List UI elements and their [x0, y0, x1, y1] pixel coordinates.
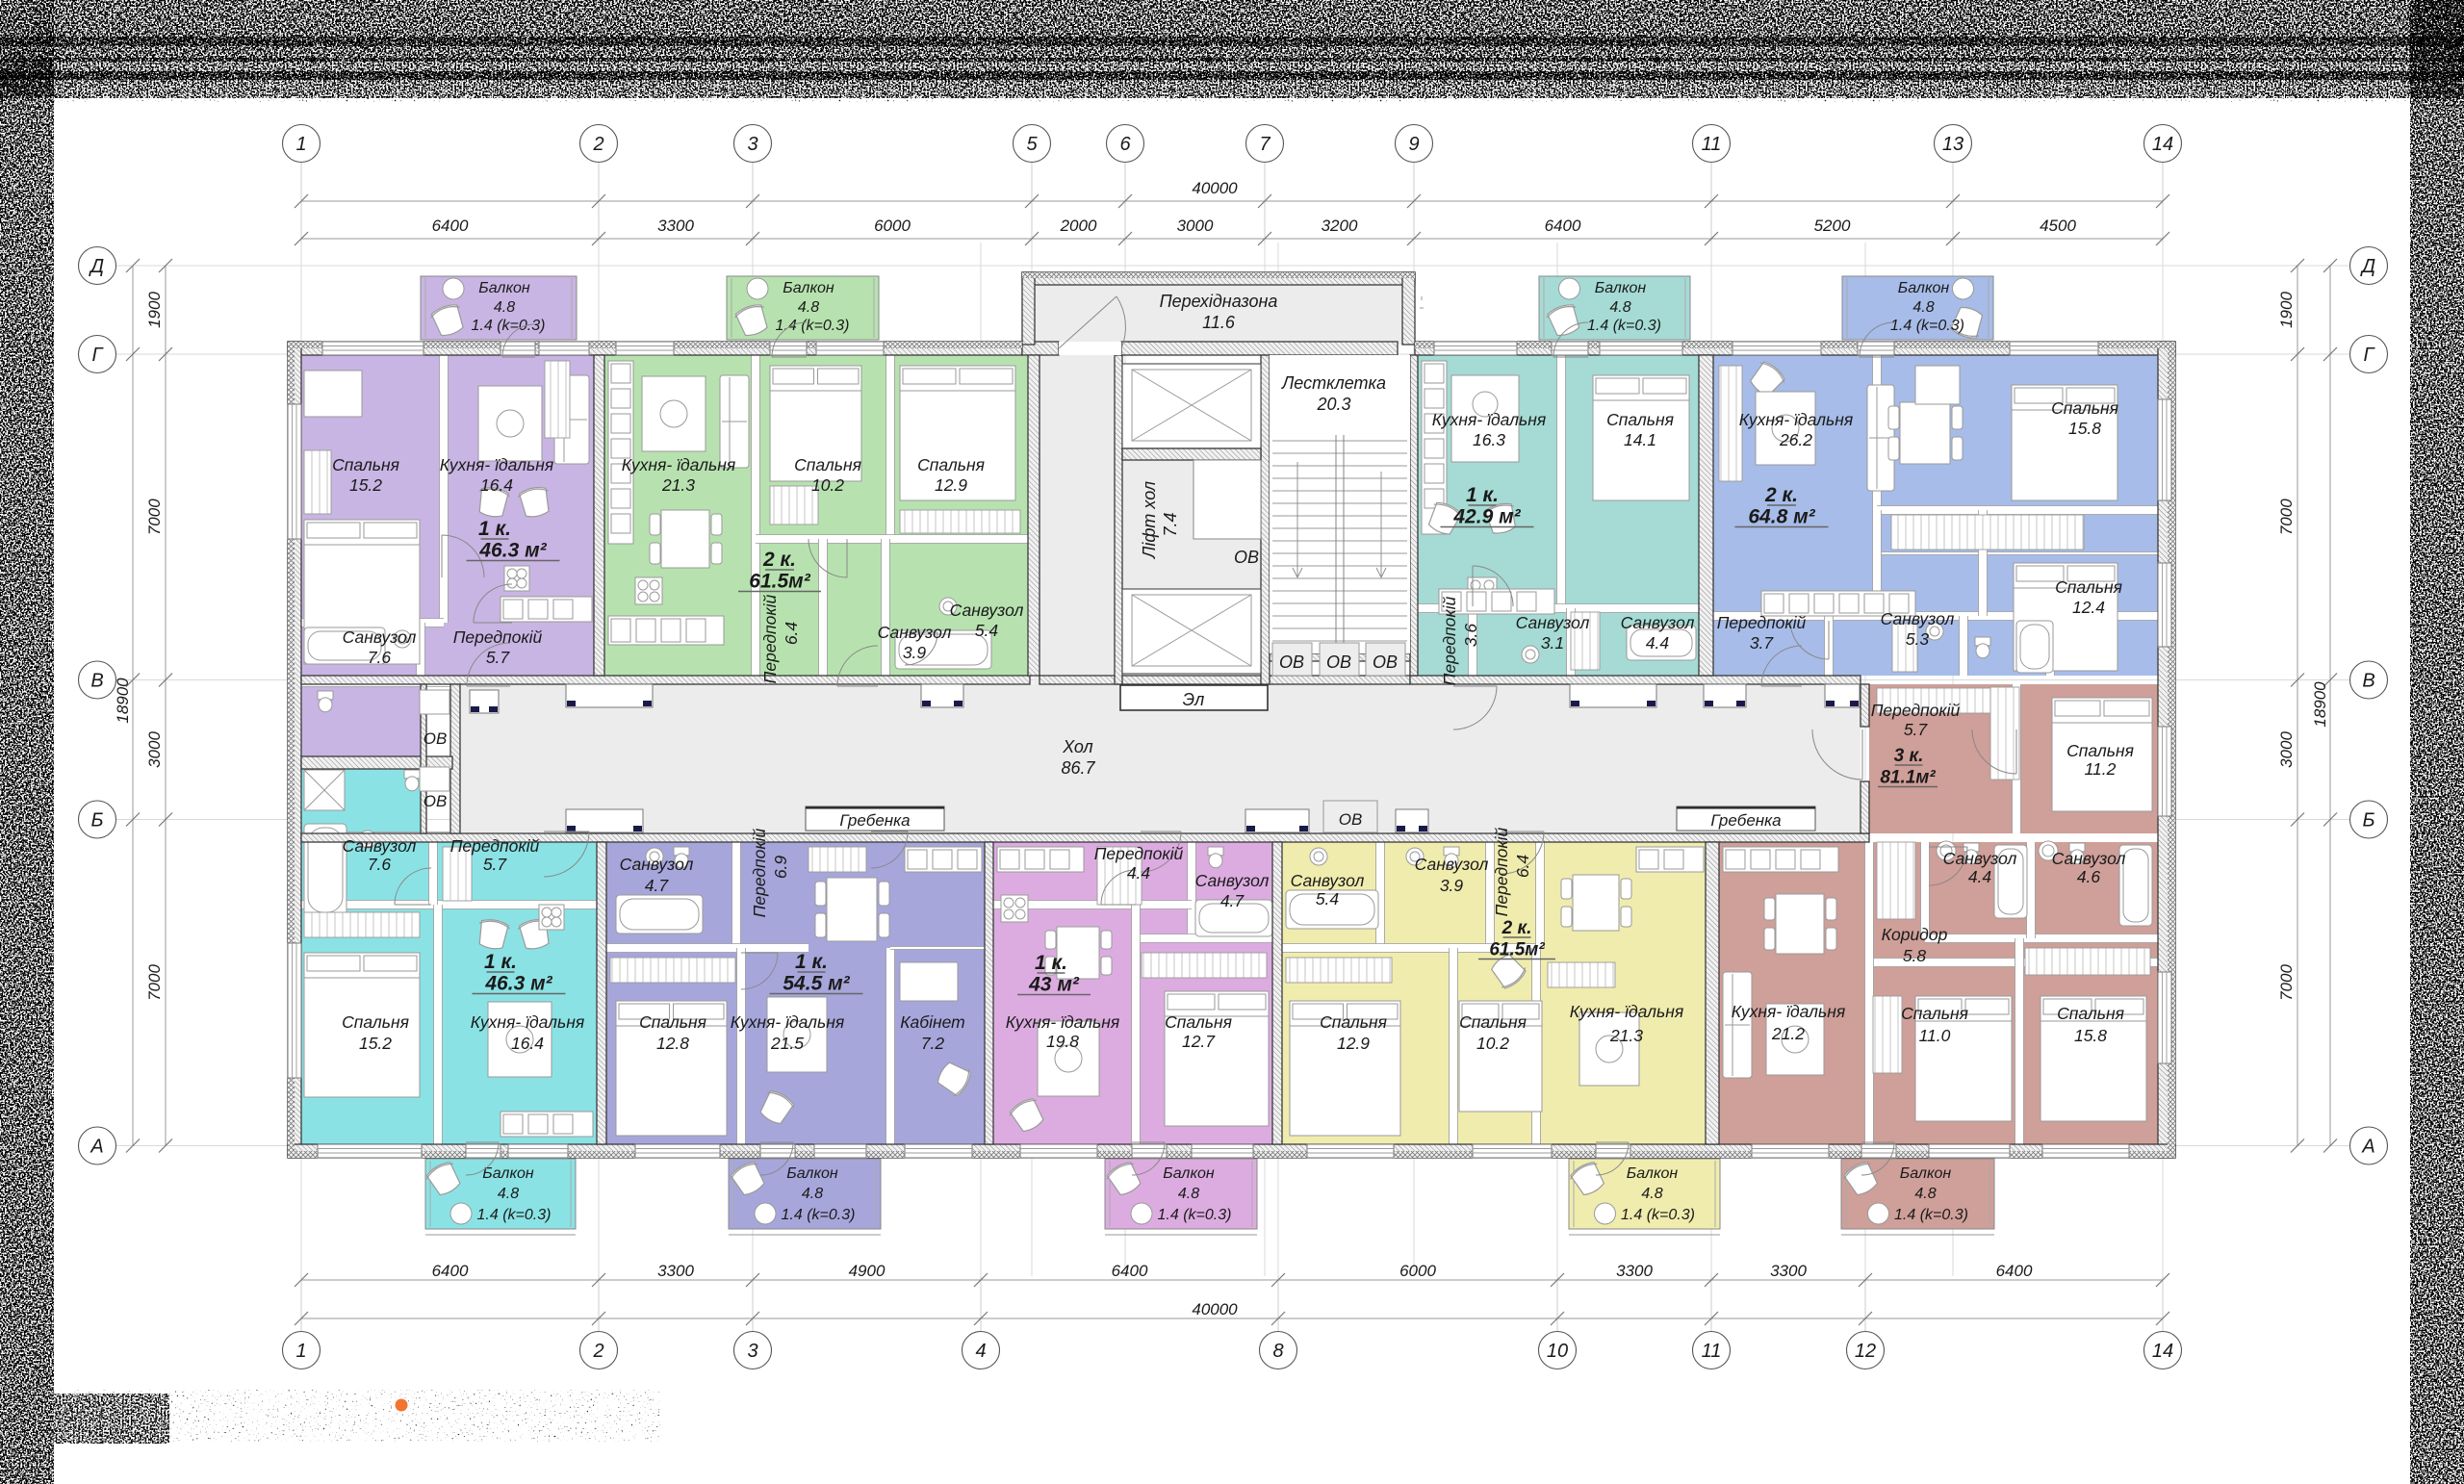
svg-text:5.7: 5.7	[483, 855, 508, 874]
svg-text:21.3: 21.3	[1609, 1026, 1643, 1045]
svg-text:7000: 7000	[145, 499, 164, 535]
svg-text:26.2: 26.2	[1779, 430, 1812, 449]
svg-text:А: А	[90, 1137, 103, 1158]
svg-text:Кухня- їдальня: Кухня- їдальня	[1739, 410, 1853, 429]
svg-text:Спальня: Спальня	[2055, 577, 2122, 597]
svg-text:Спальня: Спальня	[1606, 410, 1674, 429]
svg-text:1.4 (k=0.3): 1.4 (k=0.3)	[1587, 318, 1661, 334]
svg-text:3300: 3300	[657, 1262, 694, 1280]
svg-text:15.8: 15.8	[2068, 419, 2101, 438]
svg-text:Санвузол: Санвузол	[1415, 855, 1489, 874]
svg-text:16.4: 16.4	[511, 1034, 544, 1053]
svg-text:16.4: 16.4	[480, 475, 513, 495]
svg-text:1.4 (k=0.3): 1.4 (k=0.3)	[1158, 1207, 1232, 1223]
svg-text:12: 12	[1855, 1341, 1876, 1362]
svg-text:18900: 18900	[114, 678, 132, 724]
svg-text:Перехідназона: Перехідназона	[1160, 292, 1278, 311]
svg-text:4500: 4500	[2040, 217, 2076, 235]
svg-text:5.4: 5.4	[975, 621, 999, 640]
svg-text:Санвузол: Санвузол	[950, 601, 1024, 620]
svg-text:4.8: 4.8	[798, 299, 819, 316]
svg-text:6.4: 6.4	[782, 622, 801, 646]
svg-text:11: 11	[1702, 134, 1722, 155]
svg-text:Балкон: Балкон	[1163, 1165, 1215, 1182]
svg-text:12.9: 12.9	[935, 475, 967, 495]
svg-text:40000: 40000	[1192, 1300, 1238, 1318]
svg-text:Передпокій: Передпокій	[1094, 844, 1184, 863]
svg-text:4.7: 4.7	[1220, 891, 1245, 910]
svg-text:Кухня- їдальня: Кухня- їдальня	[471, 1012, 584, 1032]
svg-text:3.9: 3.9	[903, 643, 927, 662]
svg-text:3000: 3000	[2277, 731, 2296, 768]
svg-text:Ліфт хол: Ліфт хол	[1140, 481, 1159, 559]
svg-text:3.6: 3.6	[1461, 624, 1480, 648]
svg-text:18900: 18900	[2311, 681, 2329, 728]
svg-text:1.4 (k=0.3): 1.4 (k=0.3)	[472, 318, 546, 334]
svg-text:42.9 м²: 42.9 м²	[1452, 506, 1521, 528]
svg-text:1900: 1900	[145, 292, 164, 328]
svg-text:4.8: 4.8	[1641, 1186, 1662, 1202]
svg-text:12.7: 12.7	[1182, 1032, 1216, 1051]
svg-text:Лестклетка: Лестклетка	[1281, 373, 1386, 393]
svg-text:Передпокій: Передпокій	[1440, 596, 1459, 685]
svg-text:19.8: 19.8	[1046, 1032, 1079, 1051]
svg-text:3300: 3300	[1616, 1262, 1653, 1280]
svg-text:4.7: 4.7	[645, 876, 670, 895]
svg-text:А: А	[2361, 1137, 2374, 1158]
svg-text:81.1м²: 81.1м²	[1880, 768, 1936, 788]
svg-text:Гребенка: Гребенка	[839, 811, 910, 830]
svg-text:Санвузол: Санвузол	[620, 855, 694, 874]
svg-text:7000: 7000	[145, 964, 164, 1001]
svg-text:1 к.: 1 к.	[1035, 952, 1067, 974]
svg-text:12.9: 12.9	[1337, 1034, 1370, 1053]
svg-text:21.3: 21.3	[661, 475, 695, 495]
svg-text:Спальня: Спальня	[1459, 1012, 1527, 1032]
svg-text:20.3: 20.3	[1316, 395, 1350, 414]
svg-text:64.8 м²: 64.8 м²	[1748, 506, 1815, 528]
svg-text:5200: 5200	[1814, 217, 1851, 235]
svg-text:Санвузол: Санвузол	[1621, 613, 1695, 632]
svg-text:40000: 40000	[1192, 179, 1238, 197]
svg-text:6: 6	[1119, 134, 1131, 155]
svg-text:15.2: 15.2	[359, 1034, 392, 1053]
svg-text:ОВ: ОВ	[1326, 652, 1351, 672]
svg-text:ОВ: ОВ	[1279, 652, 1304, 672]
svg-text:Балкон: Балкон	[478, 280, 530, 296]
svg-text:Передпокій: Передпокій	[1717, 613, 1807, 632]
svg-text:3300: 3300	[1770, 1262, 1807, 1280]
svg-text:Эл: Эл	[1183, 690, 1205, 709]
svg-text:Передпокій: Передпокій	[453, 627, 543, 647]
svg-text:Санвузол: Санвузол	[1195, 871, 1270, 890]
svg-text:7000: 7000	[2277, 499, 2296, 535]
svg-text:3.1: 3.1	[1541, 633, 1564, 652]
svg-text:6000: 6000	[874, 217, 911, 235]
svg-text:10: 10	[1547, 1341, 1568, 1362]
svg-text:1 к.: 1 к.	[1466, 484, 1499, 506]
svg-text:8: 8	[1272, 1341, 1283, 1362]
svg-text:4.6: 4.6	[2077, 867, 2101, 886]
svg-text:ОВ: ОВ	[423, 729, 448, 748]
svg-text:3000: 3000	[1177, 217, 1214, 235]
svg-text:Спальня: Спальня	[1320, 1012, 1387, 1032]
svg-text:10.2: 10.2	[811, 475, 844, 495]
svg-text:14.1: 14.1	[1624, 430, 1656, 449]
svg-text:Передпокій: Передпокій	[1871, 701, 1961, 720]
svg-text:3000: 3000	[145, 731, 164, 768]
svg-text:2000: 2000	[1060, 217, 1097, 235]
svg-text:2 к.: 2 к.	[1501, 918, 1532, 938]
svg-text:ОВ: ОВ	[1234, 548, 1259, 567]
svg-text:Спальня: Спальня	[1165, 1012, 1232, 1032]
svg-text:16.3: 16.3	[1473, 430, 1505, 449]
svg-text:Балкон: Балкон	[786, 1165, 838, 1182]
svg-text:61.5м²: 61.5м²	[1489, 940, 1545, 960]
svg-text:1.4 (k=0.3): 1.4 (k=0.3)	[1894, 1207, 1968, 1223]
svg-text:Б: Б	[2362, 810, 2374, 832]
svg-text:Спальня: Спальня	[639, 1012, 706, 1032]
svg-text:Кухня- їдальня: Кухня- їдальня	[1732, 1002, 1845, 1021]
svg-text:6400: 6400	[432, 1262, 469, 1280]
svg-text:Спальня: Спальня	[1901, 1004, 1968, 1023]
svg-text:4900: 4900	[849, 1262, 885, 1280]
svg-text:Д: Д	[2360, 256, 2375, 277]
svg-text:3: 3	[747, 1341, 757, 1362]
svg-text:Санвузол: Санвузол	[1881, 609, 1955, 628]
svg-text:43 м²: 43 м²	[1028, 974, 1080, 996]
svg-text:Спальня: Спальня	[332, 455, 399, 474]
svg-text:4.8: 4.8	[498, 1186, 519, 1202]
svg-text:1 к.: 1 к.	[484, 951, 517, 973]
svg-text:6400: 6400	[1112, 1262, 1148, 1280]
svg-text:5.8: 5.8	[1903, 946, 1927, 965]
svg-text:Балкон: Балкон	[1900, 1165, 1952, 1182]
svg-text:2 к.: 2 к.	[762, 549, 796, 571]
svg-text:6000: 6000	[1399, 1262, 1436, 1280]
svg-text:11: 11	[1702, 1341, 1722, 1362]
svg-text:Санвузол: Санвузол	[1291, 871, 1365, 890]
svg-text:4.8: 4.8	[1914, 1186, 1936, 1202]
svg-text:12.8: 12.8	[656, 1034, 689, 1053]
svg-text:4.8: 4.8	[802, 1186, 823, 1202]
svg-text:5.7: 5.7	[1904, 720, 1929, 739]
svg-text:2: 2	[592, 1341, 603, 1362]
svg-text:1.4 (k=0.3): 1.4 (k=0.3)	[776, 318, 850, 334]
svg-text:3200: 3200	[1322, 217, 1358, 235]
svg-text:14: 14	[2152, 1341, 2173, 1362]
svg-text:Кухня- їдальня: Кухня- їдальня	[622, 455, 735, 474]
svg-text:6400: 6400	[432, 217, 469, 235]
svg-text:Д: Д	[89, 256, 104, 277]
svg-text:2: 2	[592, 134, 603, 155]
svg-text:4.4: 4.4	[1646, 633, 1670, 652]
svg-text:1.4 (k=0.3): 1.4 (k=0.3)	[477, 1207, 552, 1223]
svg-text:Передпокій: Передпокій	[750, 828, 769, 917]
svg-text:1 к.: 1 к.	[795, 951, 828, 973]
svg-text:1.4 (k=0.3): 1.4 (k=0.3)	[1890, 318, 1964, 334]
svg-text:3: 3	[747, 134, 757, 155]
svg-text:Спальня: Спальня	[2066, 741, 2134, 760]
svg-text:3 к.: 3 к.	[1894, 746, 1924, 766]
svg-text:Санвузол: Санвузол	[1943, 849, 2017, 868]
svg-text:Спальня: Спальня	[342, 1012, 409, 1032]
svg-text:4: 4	[975, 1341, 986, 1362]
svg-text:3.7: 3.7	[1750, 633, 1775, 652]
svg-text:14: 14	[2152, 134, 2173, 155]
svg-text:4.4: 4.4	[1968, 867, 1992, 886]
svg-text:13: 13	[1942, 134, 1963, 155]
svg-text:Кабінет: Кабінет	[900, 1012, 965, 1032]
svg-text:Передпокій: Передпокій	[450, 836, 540, 856]
svg-text:ОВ: ОВ	[1373, 652, 1398, 672]
svg-text:Санвузол: Санвузол	[1516, 613, 1590, 632]
svg-text:7.6: 7.6	[368, 855, 392, 874]
svg-text:Коридор: Коридор	[1882, 925, 1948, 944]
svg-text:3.9: 3.9	[1440, 876, 1464, 895]
svg-text:Кухня- їдальня: Кухня- їдальня	[1570, 1002, 1683, 1021]
svg-text:21.2: 21.2	[1771, 1024, 1805, 1043]
svg-text:46.3 м²: 46.3 м²	[478, 540, 547, 562]
svg-text:4.8: 4.8	[1178, 1186, 1199, 1202]
svg-text:11.0: 11.0	[1919, 1026, 1951, 1045]
svg-text:1: 1	[295, 134, 306, 155]
svg-text:ОВ: ОВ	[423, 792, 448, 810]
svg-text:9: 9	[1408, 134, 1419, 155]
svg-text:Кухня- їдальня: Кухня- їдальня	[440, 455, 553, 474]
svg-text:61.5м²: 61.5м²	[749, 571, 810, 593]
svg-text:4.8: 4.8	[1609, 299, 1630, 316]
svg-text:5.3: 5.3	[1906, 629, 1930, 649]
svg-text:Спальня: Спальня	[794, 455, 861, 474]
svg-text:5.7: 5.7	[486, 648, 511, 667]
svg-text:Санвузол: Санвузол	[343, 836, 417, 856]
svg-text:Санвузол: Санвузол	[878, 623, 952, 642]
svg-text:5: 5	[1026, 134, 1038, 155]
svg-text:7: 7	[1259, 134, 1270, 155]
svg-text:7000: 7000	[2277, 964, 2296, 1001]
svg-text:54.5 м²: 54.5 м²	[783, 973, 850, 995]
svg-text:4.8: 4.8	[1912, 299, 1934, 316]
svg-text:1.4 (k=0.3): 1.4 (k=0.3)	[782, 1207, 856, 1223]
svg-text:7.6: 7.6	[368, 648, 392, 667]
svg-text:Балкон: Балкон	[482, 1165, 534, 1182]
svg-text:11.6: 11.6	[1202, 313, 1236, 332]
svg-text:Санвузол: Санвузол	[2052, 849, 2126, 868]
svg-text:В: В	[2362, 671, 2374, 692]
svg-text:46.3 м²: 46.3 м²	[484, 973, 552, 995]
svg-text:86.7: 86.7	[1061, 758, 1095, 778]
svg-text:Спальня: Спальня	[2051, 398, 2118, 418]
svg-text:7.4: 7.4	[1161, 512, 1180, 536]
svg-text:1900: 1900	[2277, 292, 2296, 328]
svg-text:Балкон: Балкон	[1898, 280, 1950, 296]
svg-text:Балкон: Балкон	[1627, 1165, 1679, 1182]
svg-text:Спальня: Спальня	[2057, 1004, 2124, 1023]
svg-text:1: 1	[295, 1341, 306, 1362]
svg-text:Спальня: Спальня	[917, 455, 985, 474]
svg-text:ОВ: ОВ	[1339, 810, 1363, 829]
svg-text:7.2: 7.2	[921, 1034, 945, 1053]
svg-text:Санвузол: Санвузол	[343, 627, 417, 647]
svg-text:Передпокій: Передпокій	[1492, 827, 1511, 916]
svg-text:1.4 (k=0.3): 1.4 (k=0.3)	[1621, 1207, 1695, 1223]
svg-text:Балкон: Балкон	[1595, 280, 1647, 296]
svg-text:4.8: 4.8	[494, 299, 515, 316]
svg-text:Гребенка: Гребенка	[1710, 811, 1781, 830]
svg-text:5.4: 5.4	[1316, 889, 1340, 908]
svg-text:Б: Б	[90, 810, 103, 832]
svg-text:Балкон: Балкон	[783, 280, 834, 296]
svg-text:Передпокій: Передпокій	[760, 594, 780, 683]
svg-text:6.4: 6.4	[1513, 855, 1532, 879]
svg-text:Кухня- їдальня: Кухня- їдальня	[1006, 1012, 1119, 1032]
svg-text:2 к.: 2 к.	[1764, 484, 1798, 506]
svg-text:В: В	[90, 671, 103, 692]
svg-text:6.9: 6.9	[771, 856, 790, 880]
svg-text:6400: 6400	[1996, 1262, 2033, 1280]
svg-text:6400: 6400	[1545, 217, 1581, 235]
svg-text:Кухня- їдальня: Кухня- їдальня	[731, 1012, 844, 1032]
svg-text:15.8: 15.8	[2074, 1026, 2107, 1045]
svg-text:21.5: 21.5	[770, 1034, 804, 1053]
svg-text:10.2: 10.2	[1476, 1034, 1509, 1053]
svg-text:3300: 3300	[657, 217, 694, 235]
svg-text:Кухня- їдальня: Кухня- їдальня	[1432, 410, 1546, 429]
svg-text:12.4: 12.4	[2072, 598, 2105, 617]
svg-text:Хол: Хол	[1062, 737, 1092, 756]
svg-text:1 к.: 1 к.	[478, 518, 511, 540]
svg-text:15.2: 15.2	[349, 475, 382, 495]
svg-text:11.2: 11.2	[2085, 759, 2117, 779]
svg-text:4.4: 4.4	[1127, 863, 1151, 883]
